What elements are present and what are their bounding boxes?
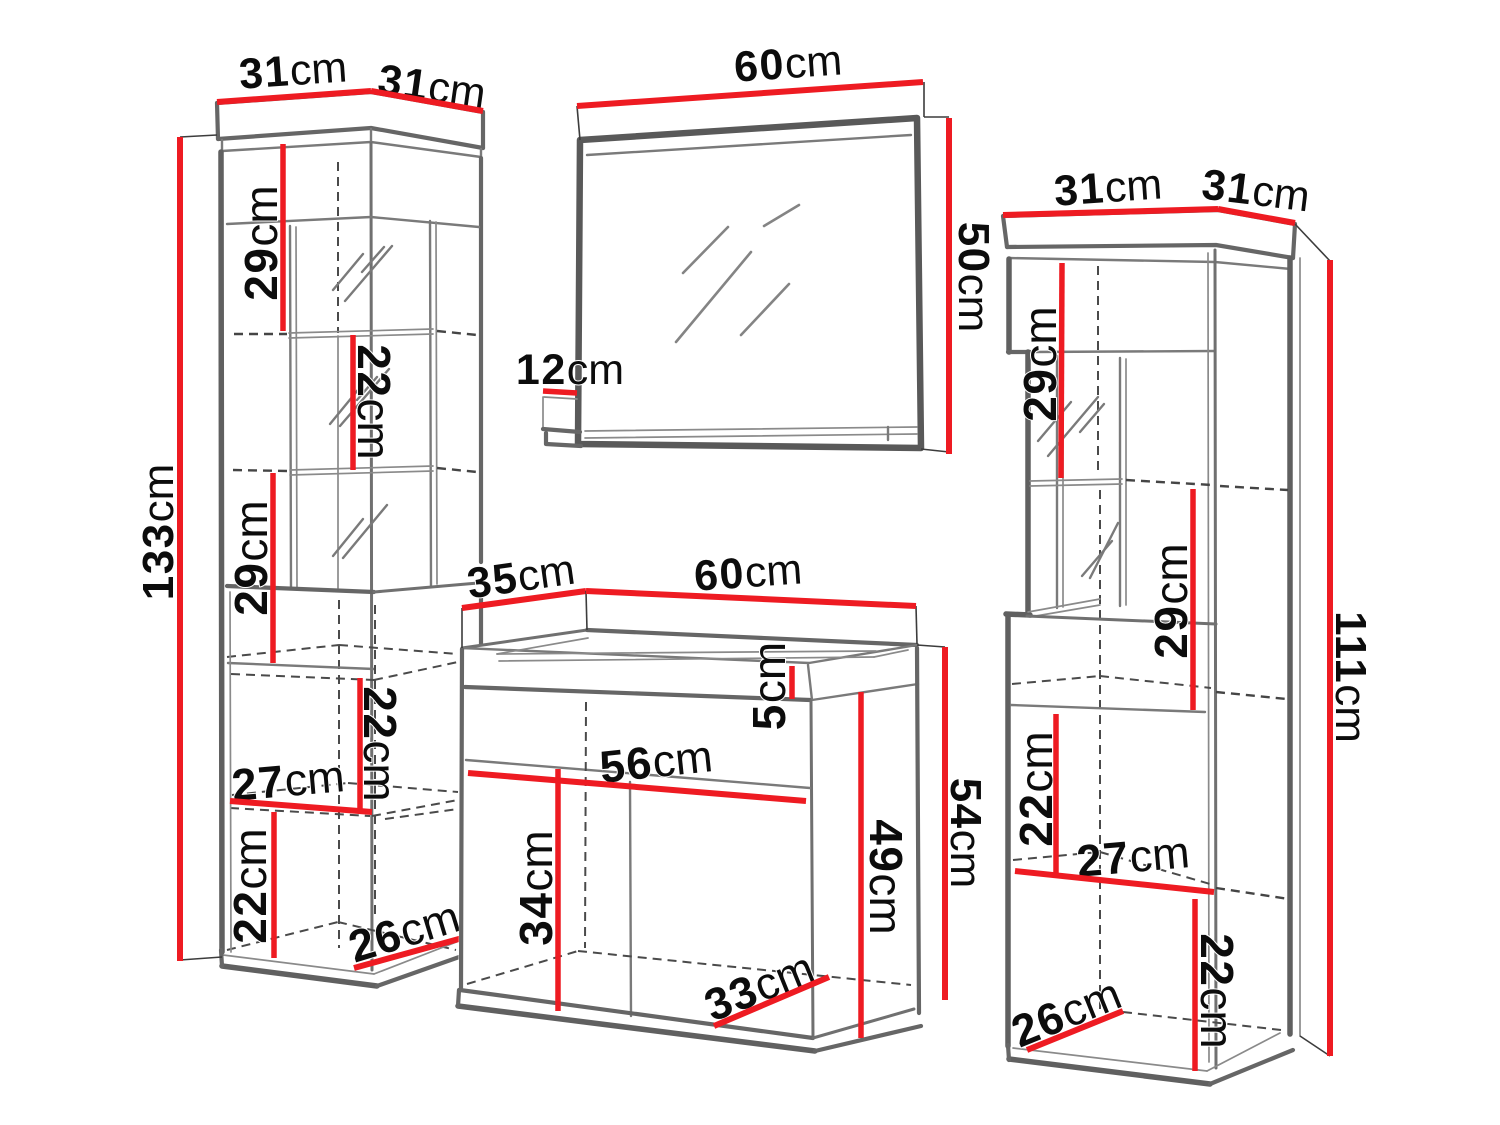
svg-text:133cm: 133cm xyxy=(134,464,183,601)
svg-text:22cm: 22cm xyxy=(348,344,400,460)
svg-text:34cm: 34cm xyxy=(510,830,562,946)
svg-text:54cm: 54cm xyxy=(941,778,990,889)
svg-text:60cm: 60cm xyxy=(692,545,803,600)
svg-text:31cm: 31cm xyxy=(1052,160,1163,215)
svg-text:22cm: 22cm xyxy=(1191,933,1243,1049)
svg-text:29cm: 29cm xyxy=(1145,543,1197,659)
svg-text:111cm: 111cm xyxy=(1326,611,1375,743)
svg-text:29cm: 29cm xyxy=(235,185,287,301)
svg-text:49cm: 49cm xyxy=(860,819,912,935)
svg-text:22cm: 22cm xyxy=(224,828,276,944)
svg-text:60cm: 60cm xyxy=(732,36,843,91)
svg-text:29cm: 29cm xyxy=(225,500,277,616)
svg-text:5cm: 5cm xyxy=(743,642,795,730)
svg-text:12cm: 12cm xyxy=(516,346,624,394)
svg-text:50cm: 50cm xyxy=(949,222,998,333)
svg-text:31cm: 31cm xyxy=(237,43,348,98)
svg-text:29cm: 29cm xyxy=(1014,306,1066,422)
